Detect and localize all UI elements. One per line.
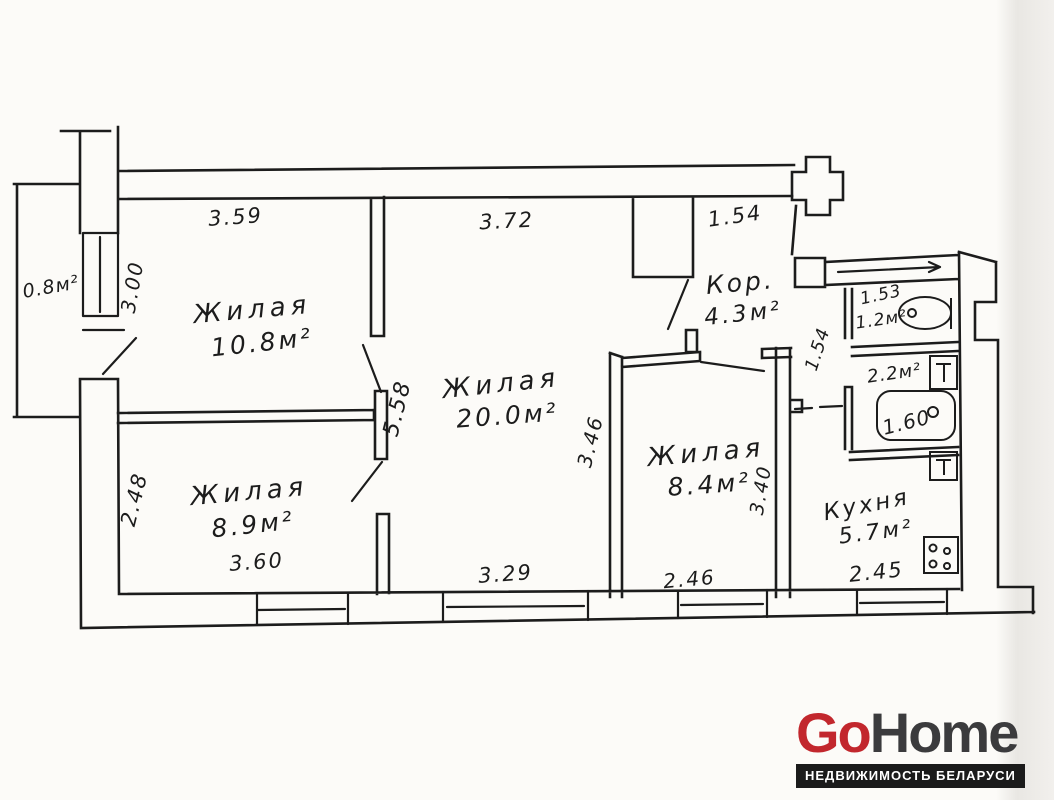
dim-living4-width: 2.46	[662, 565, 716, 593]
gohome-watermark: GoHome НЕДВИЖИМОСТЬ БЕЛАРУСИ	[796, 705, 1025, 788]
dim-hall-width-top: 1.54	[706, 200, 764, 231]
chimney-stack-icon	[792, 157, 843, 215]
logo-go-text: Go	[796, 701, 870, 764]
entrance-arrow-icon	[838, 262, 940, 272]
sink-icon	[930, 356, 957, 389]
dim-hall-passage-width: 1.54	[801, 325, 835, 373]
living2-area: 20.0м²	[455, 397, 559, 433]
living1-area: 10.8м²	[210, 323, 315, 363]
balcony-area: 0.8м²	[21, 271, 81, 303]
corridor-label: Кор.	[705, 265, 776, 300]
logo-home-text: Home	[870, 701, 1018, 764]
logo-tagline: НЕДВИЖИМОСТЬ БЕЛАРУСИ	[796, 764, 1025, 788]
dim-living2-width-top: 3.72	[479, 208, 535, 235]
corridor-area: 4.3м²	[703, 297, 783, 331]
floor-plan-drawing: Жилая 10.8м² Жилая 20.0м² Жилая 8.9м² Жи…	[0, 0, 1054, 800]
room-labels: Жилая 10.8м² Жилая 20.0м² Жилая 8.9м² Жи…	[21, 265, 923, 549]
living4-area: 8.4м²	[667, 467, 752, 502]
dim-living3-height: 2.48	[116, 470, 153, 529]
gohome-logo: GoHome	[796, 705, 1025, 761]
dim-kitchen-width: 2.45	[848, 557, 905, 587]
dim-living4-height-right: 3.40	[746, 463, 776, 516]
dim-living2-height: 5.58	[379, 378, 417, 439]
living3-area: 8.9м²	[210, 506, 296, 544]
dim-living2-width-bottom: 3.29	[477, 560, 533, 588]
wc-area: 1.2м²	[854, 307, 908, 334]
dim-balcony-height: 3.00	[116, 259, 149, 315]
bathroom-area: 2.2м²	[866, 359, 923, 387]
dim-living1-width: 3.59	[207, 203, 263, 231]
balcony-window-icon	[83, 233, 124, 330]
dim-living3-width: 3.60	[228, 548, 284, 576]
stove-icon	[924, 537, 958, 573]
dim-bath-length: 1.60	[880, 405, 933, 440]
dim-living4-height-left: 3.46	[572, 413, 608, 470]
floor-plan-page: Жилая 10.8м² Жилая 20.0м² Жилая 8.9м² Жи…	[0, 0, 1054, 800]
dim-wc-width: 1.53	[858, 281, 903, 309]
